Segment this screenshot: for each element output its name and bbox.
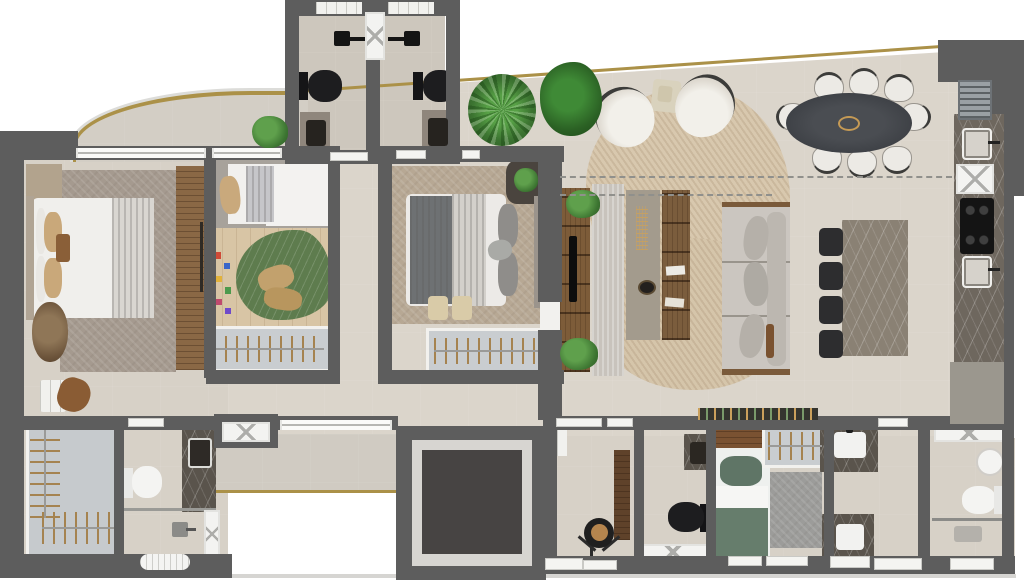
- blanket-kids: [246, 166, 274, 222]
- island-stool-2: [819, 262, 843, 290]
- toilet-top-right-tank: [413, 72, 423, 100]
- toy-block-4: [225, 287, 231, 294]
- bed-master-headboard: [26, 196, 34, 320]
- wall-bottom-right-right: [1002, 416, 1014, 574]
- threshold-6: [874, 558, 922, 570]
- threshold-7: [950, 558, 994, 570]
- sink-top-right: [428, 118, 448, 146]
- kitchen-faucet-mid: [988, 268, 1000, 271]
- ceiling-dashed-line-1: [560, 176, 952, 178]
- shower-divider-master: [122, 508, 216, 511]
- toilet-master-bowl: [132, 466, 162, 498]
- island-stool-3: [819, 296, 843, 324]
- stool-middle-1: [428, 296, 448, 320]
- sink-top-left: [306, 120, 326, 146]
- kitchen-island: [842, 220, 908, 356]
- kitchen-sink-top: [962, 128, 992, 160]
- dining-chair-top-2: [849, 68, 879, 96]
- plant-fig-living: [540, 62, 602, 136]
- pillow-maid: [720, 456, 762, 486]
- toy-block-3: [215, 276, 222, 282]
- divider-right-bath: [932, 518, 1004, 521]
- wall-bottom-right-left: [543, 416, 557, 574]
- closet-niche-left: [316, 2, 362, 14]
- sink-hall-top: [834, 432, 866, 458]
- closet-niche-right: [388, 2, 434, 14]
- toilet-right-bath-bowl: [962, 486, 996, 514]
- books-1: [666, 265, 686, 275]
- sofa-wood-accent: [766, 324, 774, 358]
- wall-middle-right-b: [538, 330, 562, 420]
- plant-palm-living: [468, 74, 536, 146]
- bed-master-tray: [56, 234, 70, 262]
- kitchen-xbox: [956, 164, 994, 194]
- shower-right-bath: [954, 526, 982, 542]
- kitchen-cabinet: [950, 362, 1004, 424]
- kitchen-sink-mid: [962, 256, 992, 288]
- door-bath-block: [330, 152, 368, 161]
- kitchen-grill: [958, 80, 992, 120]
- sink-round-right-bath: [976, 448, 1004, 476]
- ceiling-dashed-line-2: [560, 194, 772, 196]
- wall-middle-left: [378, 146, 392, 384]
- wall-middle-bottom: [378, 370, 564, 384]
- wall-bath-maid-divider: [706, 416, 716, 574]
- wall-left-outer: [0, 131, 24, 578]
- island-stool-4: [819, 330, 843, 358]
- rug-maid: [764, 472, 822, 548]
- threshold-1: [545, 558, 583, 570]
- island-stool-1: [819, 228, 843, 256]
- shaft-xbox: [365, 12, 385, 60]
- shower-head-left: [334, 31, 350, 46]
- sofa-wood-trim-bottom: [722, 369, 790, 375]
- wall-hall-bath-divider: [918, 416, 930, 574]
- elevator-core: [422, 450, 522, 554]
- plant-dry-master: [32, 302, 68, 362]
- stool-middle-2: [452, 296, 472, 320]
- sink-hall-bottom: [836, 524, 864, 550]
- side-table-top: [657, 85, 673, 102]
- wall-middle-right-a: [538, 146, 562, 302]
- wall-bath-divider: [366, 58, 380, 152]
- threshold-2: [583, 560, 617, 570]
- wall-bottom-left-band: [0, 554, 232, 578]
- drum-stool-top: [591, 524, 608, 541]
- toilet-top-left-bowl: [308, 70, 342, 102]
- wall-bath-block-right: [446, 0, 460, 164]
- toy-block-2: [224, 263, 230, 269]
- decor-bowl: [638, 280, 656, 295]
- shower-arm-left: [350, 37, 366, 41]
- door-balcony-bottom: [280, 420, 392, 430]
- towel-master: [140, 554, 190, 570]
- window-master: [76, 148, 206, 158]
- toy-block-6: [225, 308, 231, 314]
- closet-middle-hangers: [434, 338, 540, 364]
- floor-plan: [0, 0, 1024, 580]
- door-service-bath: [607, 418, 633, 427]
- closet-kids-hangers: [214, 336, 324, 362]
- wall-bath-block-left: [285, 0, 299, 164]
- shower-head-right: [404, 31, 420, 46]
- plant-console-bottom: [560, 338, 598, 370]
- door-middle-top-1: [396, 150, 426, 159]
- wall-maid-right: [824, 416, 834, 574]
- duvet-maid: [714, 508, 768, 556]
- door-bath-hall: [878, 418, 908, 427]
- closet-maid-hangers: [768, 432, 822, 460]
- planter-middle-plant: [514, 168, 538, 192]
- balcony-bottom-gold: [214, 490, 398, 493]
- wall-corridor-bath-divider: [634, 422, 644, 574]
- dining-centerpiece: [838, 116, 860, 131]
- toilet-service-bowl: [668, 502, 704, 532]
- threshold-3: [728, 556, 762, 566]
- kitchen-faucet-top: [988, 141, 1000, 144]
- pillow-master-tan-2: [44, 258, 62, 298]
- tv-screen: [569, 236, 577, 302]
- door-bottom-left: [128, 418, 164, 427]
- shower-screen-master: [204, 510, 220, 558]
- threshold-5: [830, 556, 870, 568]
- walkin-closet-hangers-left: [30, 430, 60, 518]
- threshold-4: [766, 556, 808, 566]
- books-2: [665, 297, 685, 308]
- bed-middle-dark-throw: [410, 196, 452, 304]
- plant-balcony-kids: [252, 116, 288, 148]
- tv-panel-gold-decor: [636, 206, 648, 250]
- vent-xbox: [222, 422, 270, 442]
- door-middle-top-2: [462, 150, 480, 159]
- decor-shelf-maid: [698, 408, 818, 420]
- wall-closet-bath-divider: [114, 418, 124, 570]
- wall-kids-bottom: [206, 370, 340, 384]
- wall-kids-right: [328, 146, 340, 382]
- door-middle-right: [540, 302, 560, 330]
- bed-middle-drape: [452, 194, 486, 306]
- sink-master-bath: [188, 438, 212, 468]
- walkin-closet-hangers-bottom: [42, 512, 114, 544]
- dining-chair-top-3: [884, 74, 914, 102]
- wardrobe-master-handle: [200, 222, 203, 292]
- kitchen-cooktop: [960, 198, 994, 254]
- duvet-kids: [266, 164, 330, 226]
- exterior-patch-right: [1014, 196, 1024, 438]
- shower-arm-master: [186, 528, 196, 531]
- door-corridor-top: [556, 418, 602, 427]
- corridor-cabinet-wood: [614, 450, 630, 540]
- toilet-top-left-tank: [298, 72, 308, 100]
- shower-arm-right: [388, 37, 404, 41]
- wall-master-kids-divider: [204, 158, 216, 378]
- bed-master-duvet-fold: [112, 198, 154, 318]
- window-kids: [212, 148, 282, 158]
